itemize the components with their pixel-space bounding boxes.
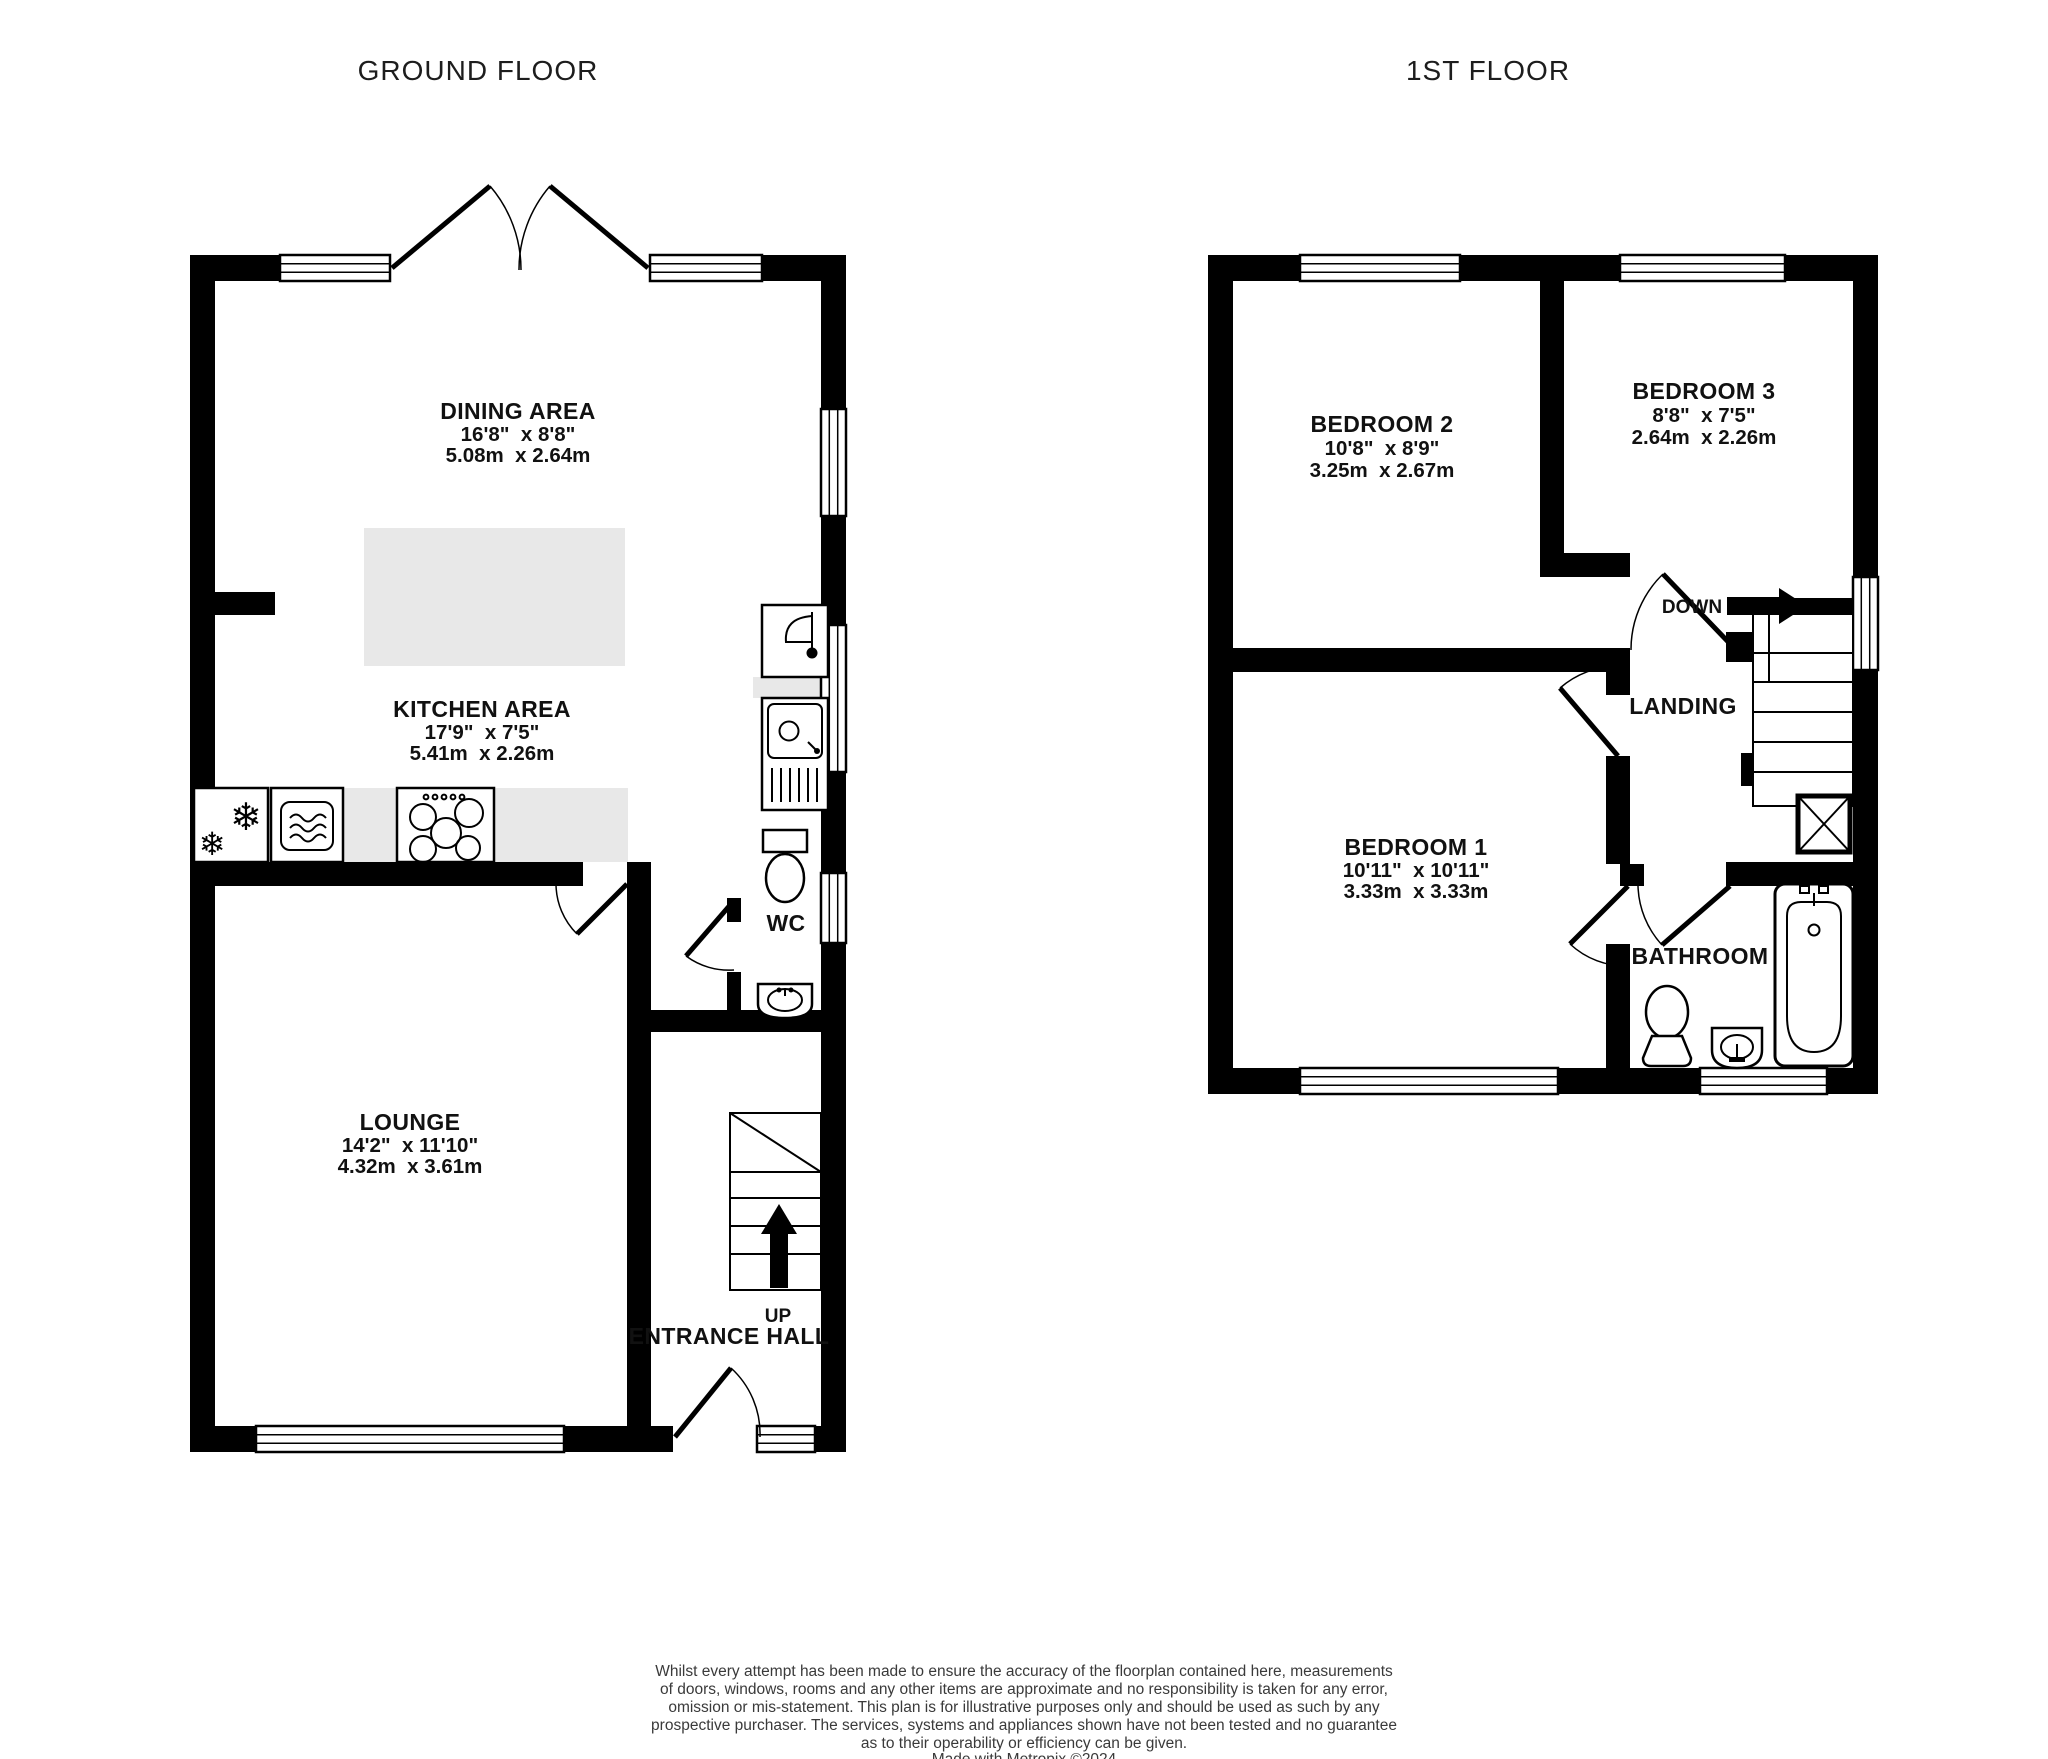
down-label: DOWN	[1662, 597, 1722, 618]
window	[1300, 255, 1460, 281]
toilet-icon	[1643, 986, 1691, 1066]
first-floor-title: 1ST FLOOR	[1406, 55, 1570, 86]
bedroom1-label: BEDROOM 1 10'11" x 10'11" 3.33m x 3.33m	[1343, 834, 1490, 903]
metropix-credit: Made with Metropix ©2024	[932, 1751, 1117, 1759]
svg-text:3.25m x 2.67m: 3.25m x 2.67m	[1310, 459, 1455, 482]
first-floor-plan: 1ST FLOOR	[1208, 55, 1878, 1094]
svg-text:10'8" x 8'9": 10'8" x 8'9"	[1325, 437, 1440, 460]
svg-text:KITCHEN AREA: KITCHEN AREA	[393, 696, 571, 722]
window	[1300, 1068, 1558, 1094]
svg-text:5.41m x 2.26m: 5.41m x 2.26m	[410, 742, 555, 765]
svg-text:DINING AREA: DINING AREA	[440, 398, 596, 424]
window	[757, 1426, 815, 1452]
svg-text:14'2" x 11'10": 14'2" x 11'10"	[342, 1134, 478, 1157]
oven-icon	[271, 788, 343, 862]
hob-icon	[397, 788, 494, 862]
wash-basin-icon	[758, 984, 812, 1018]
window	[256, 1426, 564, 1452]
svg-text:4.32m x 3.61m: 4.32m x 3.61m	[338, 1155, 483, 1178]
dining-area-label: DINING AREA 16'8" x 8'8" 5.08m x 2.64m	[440, 398, 596, 467]
window	[1853, 577, 1878, 670]
svg-text:❄: ❄	[199, 825, 226, 863]
bathtub-icon	[1775, 884, 1853, 1066]
disclaimer-line: of doors, windows, rooms and any other i…	[660, 1681, 1388, 1698]
wash-basin-icon	[1712, 1028, 1762, 1068]
svg-text:17'9" x 7'5": 17'9" x 7'5"	[425, 721, 540, 744]
svg-text:BEDROOM 1: BEDROOM 1	[1345, 834, 1488, 860]
window	[821, 409, 846, 516]
svg-text:5.08m x 2.64m: 5.08m x 2.64m	[446, 444, 591, 467]
floorplan-canvas: GROUND FLOOR	[0, 0, 2048, 1759]
landing-label: LANDING	[1629, 693, 1737, 719]
entrance-hall-label: ENTRANCE HALL	[629, 1323, 830, 1349]
fridge-freezer-icon: ❄ ❄	[194, 788, 268, 863]
svg-text:BEDROOM 2: BEDROOM 2	[1311, 411, 1454, 437]
window	[650, 255, 762, 281]
bathroom-label: BATHROOM	[1632, 943, 1769, 969]
disclaimer-line: prospective purchaser. The services, sys…	[651, 1717, 1397, 1734]
lounge-door-swing	[556, 884, 627, 934]
svg-text:❄: ❄	[230, 795, 262, 839]
window	[1620, 255, 1785, 281]
bathroom-door-swing	[1638, 886, 1730, 945]
svg-text:2.64m x 2.26m: 2.64m x 2.26m	[1632, 426, 1777, 449]
kitchen-sink-icon	[762, 698, 828, 810]
svg-text:10'11" x 10'11": 10'11" x 10'11"	[1343, 859, 1490, 882]
window	[1700, 1068, 1827, 1094]
disclaimer-line: Whilst every attempt has been made to en…	[655, 1663, 1393, 1680]
disclaimer-line: as to their operability or efficiency ca…	[861, 1735, 1187, 1752]
svg-text:3.33m x 3.33m: 3.33m x 3.33m	[1344, 880, 1489, 903]
staircase	[730, 1113, 821, 1290]
wc-label: WC	[766, 910, 805, 936]
ground-floor-title: GROUND FLOOR	[358, 55, 599, 86]
lounge-label: LOUNGE 14'2" x 11'10" 4.32m x 3.61m	[338, 1109, 483, 1178]
front-door-swing	[675, 1368, 760, 1437]
bedroom3-label: BEDROOM 3 8'8" x 7'5" 2.64m x 2.26m	[1632, 378, 1777, 449]
wc-door-swing	[686, 904, 734, 970]
cupboard-icon	[1798, 796, 1850, 852]
toilet-icon	[763, 830, 807, 902]
window	[280, 255, 390, 281]
french-doors	[392, 186, 648, 270]
disclaimer-line: omission or mis-statement. This plan is …	[668, 1699, 1380, 1716]
kitchen-area-label: KITCHEN AREA 17'9" x 7'5" 5.41m x 2.26m	[393, 696, 571, 765]
svg-text:16'8" x 8'8": 16'8" x 8'8"	[461, 423, 576, 446]
boiler-icon	[762, 605, 828, 677]
floorplan-page: GROUND FLOOR	[0, 0, 2048, 1759]
svg-text:8'8" x 7'5": 8'8" x 7'5"	[1652, 404, 1755, 427]
svg-text:BEDROOM 3: BEDROOM 3	[1633, 378, 1776, 404]
footer-disclaimer: Whilst every attempt has been made to en…	[651, 1663, 1397, 1759]
window	[821, 873, 846, 943]
bedroom2-label: BEDROOM 2 10'8" x 8'9" 3.25m x 2.67m	[1310, 411, 1455, 482]
ground-floor-plan: GROUND FLOOR	[190, 55, 846, 1452]
svg-text:LOUNGE: LOUNGE	[360, 1109, 461, 1135]
